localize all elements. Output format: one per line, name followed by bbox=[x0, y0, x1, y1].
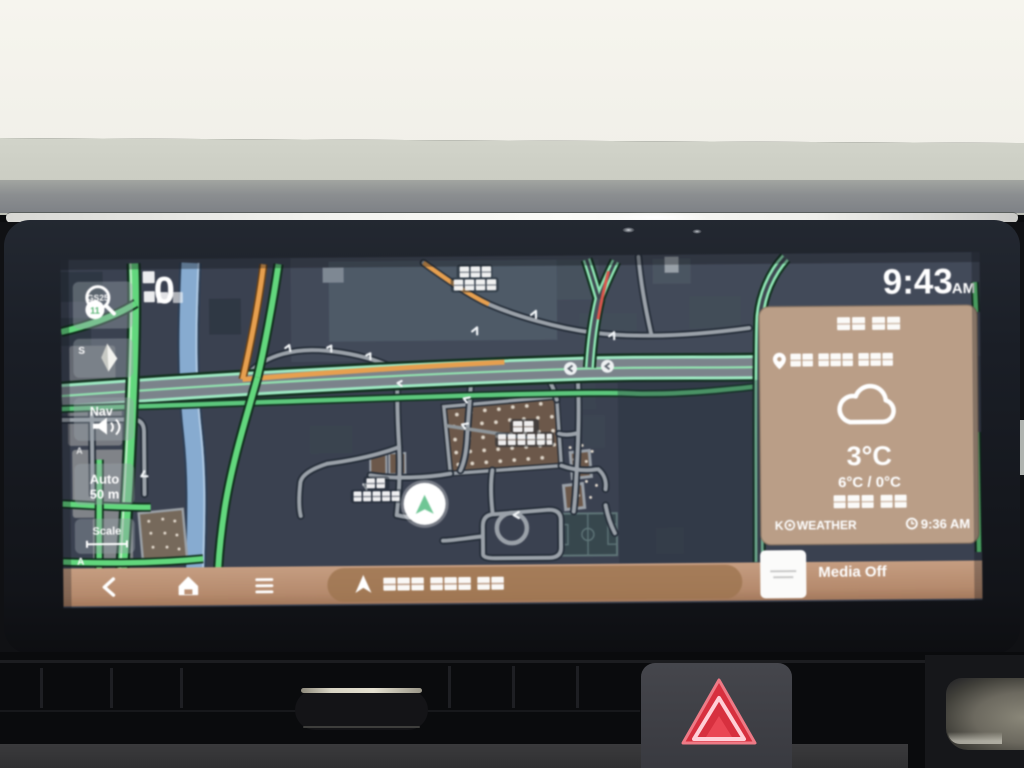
svg-text:3°C: 3°C bbox=[846, 441, 892, 471]
svg-text:Auto: Auto bbox=[90, 472, 120, 487]
svg-text:6°C / 0°C: 6°C / 0°C bbox=[838, 474, 901, 492]
svg-text:Nav: Nav bbox=[90, 405, 113, 419]
svg-text:0: 0 bbox=[154, 270, 176, 312]
svg-text:9:36 AM: 9:36 AM bbox=[921, 516, 971, 531]
svg-text:K: K bbox=[775, 519, 784, 533]
svg-text:S: S bbox=[78, 346, 85, 357]
svg-text:11: 11 bbox=[90, 306, 100, 316]
svg-text:50 m: 50 m bbox=[90, 487, 120, 502]
svg-text:WEATHER: WEATHER bbox=[797, 518, 857, 533]
svg-text:9:43: 9:43 bbox=[883, 262, 953, 302]
svg-text:Scale: Scale bbox=[92, 525, 121, 537]
svg-text:A: A bbox=[77, 557, 84, 568]
svg-text:AM: AM bbox=[952, 280, 975, 297]
svg-text:A: A bbox=[76, 446, 83, 456]
svg-text:Media Off: Media Off bbox=[818, 563, 887, 581]
